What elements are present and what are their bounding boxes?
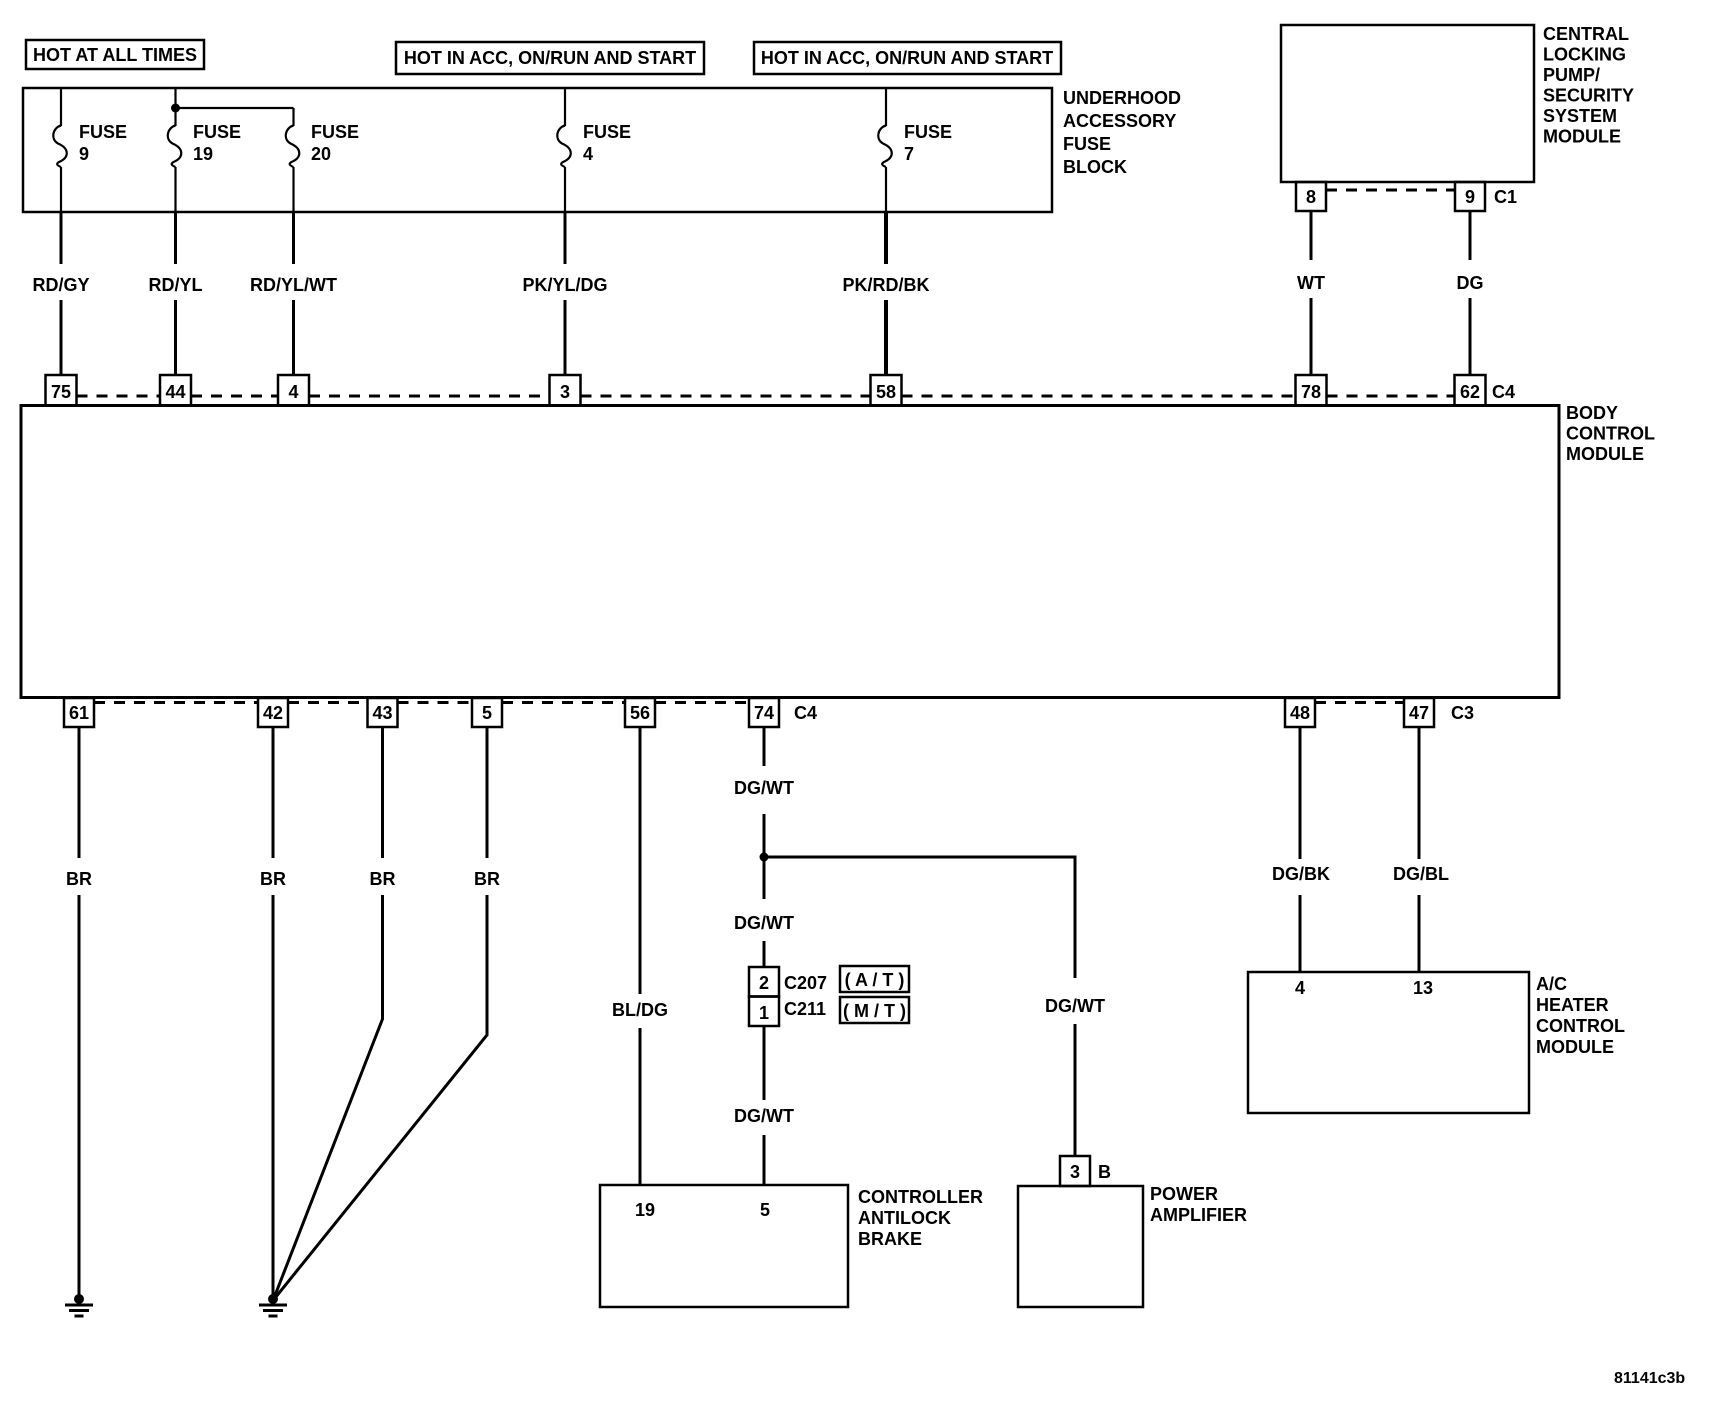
svg-text:3: 3 [560,382,570,402]
svg-text:42: 42 [263,703,283,723]
svg-text:PK/RD/BK: PK/RD/BK [842,275,929,295]
svg-text:81141c3b: 81141c3b [1614,1370,1685,1387]
svg-text:C1: C1 [1494,187,1517,207]
svg-text:C211: C211 [784,999,826,1019]
svg-text:13: 13 [1413,978,1433,998]
svg-text:5: 5 [760,1200,770,1220]
svg-text:4: 4 [288,382,298,402]
svg-text:19: 19 [635,1200,655,1220]
svg-text:61: 61 [69,703,89,723]
svg-text:8: 8 [1306,187,1316,207]
svg-text:44: 44 [165,382,185,402]
svg-text:75: 75 [51,382,71,402]
svg-text:RD/YL: RD/YL [149,275,203,295]
svg-text:HOT IN ACC, ON/RUN AND START: HOT IN ACC, ON/RUN AND START [404,48,696,68]
svg-text:BR: BR [370,869,396,889]
svg-text:4: 4 [1295,978,1305,998]
svg-text:1: 1 [759,1003,769,1023]
svg-text:C4: C4 [794,703,817,723]
svg-text:DG/WT: DG/WT [1045,996,1105,1016]
svg-text:C3: C3 [1451,703,1474,723]
svg-text:( M / T ): ( M / T ) [843,1001,906,1021]
svg-text:HOT IN ACC, ON/RUN AND START: HOT IN ACC, ON/RUN AND START [761,48,1053,68]
svg-text:PK/YL/DG: PK/YL/DG [522,275,607,295]
svg-text:RD/YL/WT: RD/YL/WT [250,275,337,295]
svg-text:2: 2 [759,973,769,993]
svg-text:BL/DG: BL/DG [612,1000,668,1020]
svg-text:78: 78 [1301,382,1321,402]
svg-text:62: 62 [1460,382,1480,402]
svg-text:47: 47 [1409,703,1429,723]
svg-text:9: 9 [1465,187,1475,207]
svg-text:BR: BR [474,869,500,889]
svg-text:5: 5 [482,703,492,723]
svg-text:DG: DG [1457,273,1484,293]
svg-text:BR: BR [260,869,286,889]
svg-text:C4: C4 [1492,382,1515,402]
svg-text:56: 56 [630,703,650,723]
svg-text:DG/WT: DG/WT [734,913,794,933]
svg-text:RD/GY: RD/GY [32,275,89,295]
svg-text:B: B [1098,1162,1111,1182]
svg-text:DG/BL: DG/BL [1393,864,1449,884]
svg-text:HOT AT ALL TIMES: HOT AT ALL TIMES [33,45,197,65]
svg-text:DG/WT: DG/WT [734,1106,794,1126]
svg-text:DG/BK: DG/BK [1272,864,1330,884]
svg-text:BR: BR [66,869,92,889]
svg-text:3: 3 [1070,1162,1080,1182]
svg-text:43: 43 [372,703,392,723]
svg-text:58: 58 [876,382,896,402]
svg-text:( A / T ): ( A / T ) [845,970,905,990]
svg-text:74: 74 [754,703,774,723]
svg-text:48: 48 [1290,703,1310,723]
svg-text:WT: WT [1297,273,1325,293]
svg-text:DG/WT: DG/WT [734,778,794,798]
svg-text:CENTRALLOCKINGPUMP/SECURITYSYS: CENTRALLOCKINGPUMP/SECURITYSYSTEMMODULE [1543,24,1634,147]
svg-text:C207: C207 [784,973,827,993]
